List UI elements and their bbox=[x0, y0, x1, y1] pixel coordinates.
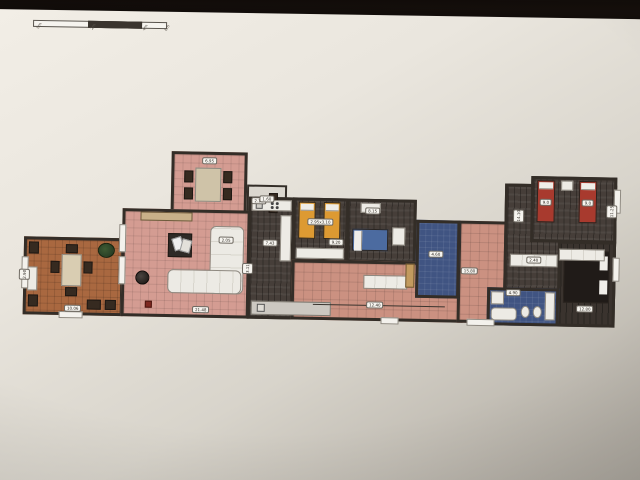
kitchen-tall-unit bbox=[280, 215, 292, 261]
window-living-left-2 bbox=[118, 256, 126, 284]
red-bed-1-pillow bbox=[539, 182, 553, 189]
floor-plan: 6.95 2.10 10.06 2.90 21.48 3.11 2.05 7.4… bbox=[20, 146, 623, 343]
blue-bed-pillow bbox=[354, 231, 362, 251]
bath-main-shower bbox=[491, 291, 504, 304]
dining-chair-left bbox=[50, 261, 59, 273]
window-dining-bottom bbox=[59, 311, 83, 318]
dining-chair-right bbox=[83, 261, 92, 273]
kitchen-sink-2 bbox=[257, 304, 265, 312]
label-kitchen-counter: 1.60 bbox=[259, 195, 274, 202]
dining-cabinet-4 bbox=[105, 300, 116, 310]
scale-tick-1: 2m bbox=[89, 22, 97, 30]
label-salon: 15.80 bbox=[461, 267, 479, 274]
master-wardrobe-2 bbox=[559, 249, 605, 262]
bath-main-cabinet bbox=[545, 292, 556, 320]
label-wardrobe: 2.40 bbox=[526, 256, 541, 263]
kids-wardrobe bbox=[296, 248, 344, 260]
door-hall-entrance bbox=[380, 317, 398, 324]
photo-of-floor-plan: { "scale_bar": { "ticks": ["0m", "2m", "… bbox=[0, 0, 640, 480]
label-kitchen: 7.43 bbox=[263, 239, 278, 246]
label-living-side: 3.11 bbox=[242, 263, 253, 274]
stove-burner-2 bbox=[276, 202, 279, 205]
kids-bed-1-pillow bbox=[301, 204, 314, 211]
loggia-chair-2 bbox=[184, 187, 193, 199]
label-red-bed-1: 9.0 bbox=[540, 199, 553, 206]
dining-cabinet-1 bbox=[29, 241, 39, 253]
label-dining-side: 2.90 bbox=[19, 269, 30, 280]
blue-bed bbox=[352, 229, 388, 252]
label-bath-small: 4.60 bbox=[428, 251, 443, 258]
scale-tick-0: 0m bbox=[35, 21, 43, 29]
window-living-left-1 bbox=[119, 224, 127, 252]
dark-bed-pillow-2 bbox=[599, 280, 607, 294]
label-dark-bedroom: 12.80 bbox=[576, 305, 594, 312]
scale-tick-2: 4m bbox=[141, 23, 149, 31]
red-bedroom-nightstand bbox=[561, 181, 573, 191]
dining-table bbox=[61, 254, 82, 286]
window-salon-bottom bbox=[466, 319, 494, 327]
label-living: 21.48 bbox=[192, 306, 210, 313]
living-sofa-horizontal bbox=[167, 269, 241, 294]
label-red-room: 11.25 bbox=[606, 205, 617, 219]
loggia-chair-1 bbox=[184, 170, 193, 182]
dining-chair-bottom bbox=[65, 287, 77, 296]
label-hall: 12.40 bbox=[366, 301, 384, 308]
label-master: 14.10 bbox=[513, 209, 524, 223]
scale-bar: 0m 2m 4m 6m bbox=[33, 18, 169, 38]
window-dark-bedroom-right bbox=[612, 258, 619, 282]
label-blue-bedroom: 8.15 bbox=[365, 207, 380, 214]
stove-burner-3 bbox=[271, 206, 274, 209]
living-sideboard bbox=[140, 212, 192, 222]
living-stool bbox=[145, 301, 152, 308]
dining-chair-top bbox=[66, 244, 78, 253]
label-bath-main: 4.90 bbox=[506, 289, 521, 296]
kids-bed-2-pillow bbox=[326, 204, 339, 211]
room-bathroom-small bbox=[415, 220, 460, 299]
label-loggia: 6.95 bbox=[202, 157, 217, 164]
label-living-small: 2.05 bbox=[219, 237, 234, 244]
hall-wardrobe bbox=[363, 275, 407, 290]
label-dining: 10.06 bbox=[64, 305, 82, 312]
hall-cabinet-tan bbox=[405, 264, 414, 288]
label-red-bed-2: 9.0 bbox=[582, 199, 595, 206]
red-bed-2-pillow bbox=[581, 183, 595, 190]
dining-cabinet-2 bbox=[28, 294, 38, 306]
loggia-table bbox=[195, 168, 222, 202]
loggia-chair-3 bbox=[223, 171, 232, 183]
loggia-chair-4 bbox=[223, 188, 232, 200]
blue-bedroom-nightstand bbox=[392, 227, 405, 245]
dining-cabinet-3 bbox=[87, 299, 101, 309]
label-kids: 9.20 bbox=[329, 239, 344, 246]
stove-burner-4 bbox=[276, 206, 279, 209]
label-kids-dim: 2.95x3.10 bbox=[307, 218, 333, 226]
